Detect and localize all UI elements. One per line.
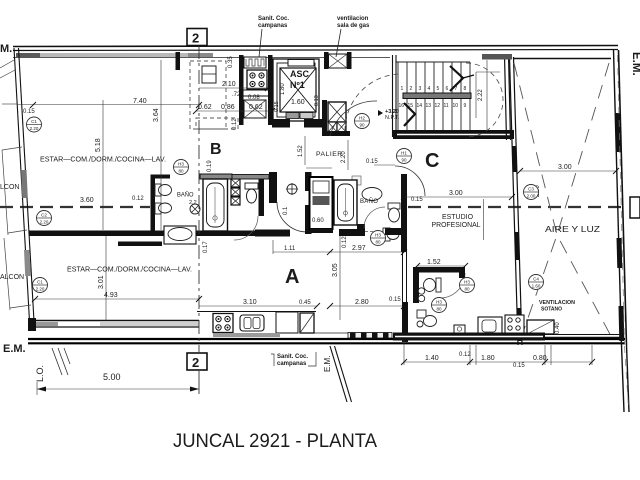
- svg-text:M.: M.: [0, 43, 12, 55]
- svg-text:0.62: 0.62: [249, 104, 263, 111]
- svg-text:AIRE Y LUZ: AIRE Y LUZ: [545, 224, 600, 234]
- svg-text:0.12: 0.12: [132, 196, 144, 202]
- svg-text:ventilacion: ventilacion: [337, 16, 369, 22]
- svg-text:1: 1: [401, 86, 404, 92]
- svg-text:VENTILACION: VENTILACION: [539, 300, 575, 306]
- svg-text:ESTAR—COM./DORM./COCINA—LAV.: ESTAR—COM./DORM./COCINA—LAV.: [67, 267, 192, 274]
- svg-text:campanas: campanas: [258, 23, 288, 29]
- svg-text:2: 2: [192, 31, 199, 46]
- svg-text:campanas: campanas: [277, 361, 307, 367]
- svg-text:1.80: 1.80: [481, 355, 495, 362]
- svg-text:2.22: 2.22: [478, 89, 484, 101]
- svg-text:H2: H2: [359, 116, 365, 121]
- svg-text:0.45: 0.45: [299, 300, 311, 306]
- svg-text:sala de gas: sala de gas: [337, 23, 370, 29]
- svg-text:3.10: 3.10: [243, 299, 257, 306]
- svg-text:3.64: 3.64: [153, 108, 160, 122]
- svg-text:7.40: 7.40: [133, 98, 147, 105]
- svg-text:1.52: 1.52: [298, 145, 304, 157]
- svg-text:2: 2: [192, 355, 199, 370]
- svg-text:B: B: [210, 141, 222, 158]
- svg-text:H3: H3: [375, 233, 381, 238]
- svg-text:1.11: 1.11: [284, 246, 296, 252]
- svg-text:5.18: 5.18: [95, 138, 102, 152]
- svg-text:4.93: 4.93: [104, 292, 118, 299]
- svg-text:0.15: 0.15: [411, 197, 423, 203]
- svg-text:0.08: 0.08: [248, 95, 260, 101]
- svg-text:9: 9: [464, 103, 467, 109]
- svg-text:14: 14: [417, 103, 423, 109]
- svg-text:5: 5: [437, 86, 440, 92]
- svg-text:2.97: 2.97: [352, 245, 366, 252]
- svg-text:C1: C1: [31, 119, 37, 124]
- svg-text:90: 90: [359, 123, 365, 128]
- svg-text:0.1: 0.1: [283, 206, 289, 215]
- svg-text:C: C: [425, 150, 439, 172]
- svg-text:2.00: 2.00: [527, 194, 536, 199]
- svg-text:0.86: 0.86: [221, 104, 235, 111]
- svg-text:0.40: 0.40: [555, 322, 561, 334]
- svg-text:E.M.: E.M.: [630, 52, 640, 76]
- svg-text:0.80: 0.80: [533, 355, 547, 362]
- svg-text:C4: C4: [533, 277, 539, 282]
- svg-text:2.20: 2.20: [40, 220, 49, 225]
- svg-text:2.20: 2.20: [30, 126, 39, 131]
- svg-text:0.13: 0.13: [314, 95, 320, 106]
- svg-text:13: 13: [426, 103, 432, 109]
- svg-text:80: 80: [178, 169, 184, 174]
- svg-text:3.00: 3.00: [449, 190, 463, 197]
- svg-text:2.2: 2.2: [189, 200, 197, 206]
- svg-text:0.35: 0.35: [228, 56, 234, 68]
- svg-text:0.19: 0.19: [207, 160, 213, 172]
- svg-text:0.62: 0.62: [198, 104, 212, 111]
- svg-text:0.12: 0.12: [459, 352, 471, 358]
- svg-text:80: 80: [375, 240, 381, 245]
- svg-text:LCON: LCON: [0, 184, 19, 191]
- svg-text:0.15: 0.15: [366, 159, 378, 165]
- svg-text:12: 12: [435, 103, 441, 109]
- svg-text:0.15: 0.15: [389, 297, 401, 303]
- svg-text:L.O.: L.O.: [35, 365, 45, 382]
- svg-text:H3: H3: [178, 162, 184, 167]
- svg-text:0.60: 0.60: [312, 218, 324, 224]
- svg-text:1.40: 1.40: [425, 355, 439, 362]
- svg-text:E.M.: E.M.: [323, 356, 332, 372]
- svg-text:A: A: [285, 266, 299, 288]
- svg-text:BAÑO: BAÑO: [360, 198, 378, 205]
- svg-text:80: 80: [464, 287, 470, 292]
- svg-text:8: 8: [464, 86, 467, 92]
- svg-text:ASC: ASC: [290, 69, 310, 79]
- svg-text:Sanit. Coc.: Sanit. Coc.: [277, 354, 308, 360]
- svg-text:2.80: 2.80: [355, 299, 369, 306]
- svg-text:90: 90: [401, 158, 407, 163]
- svg-text:H3: H3: [436, 300, 442, 305]
- svg-text:.72: .72: [232, 92, 241, 98]
- svg-text:Nº1: Nº1: [290, 80, 305, 90]
- svg-text:JUNCAL 2921 - PLANTA: JUNCAL 2921 - PLANTA: [173, 431, 377, 452]
- svg-text:3: 3: [419, 86, 422, 92]
- svg-text:11: 11: [444, 103, 449, 109]
- svg-text:BAÑO: BAÑO: [177, 192, 194, 199]
- svg-text:0.15: 0.15: [274, 101, 280, 112]
- svg-text:0.12: 0.12: [342, 236, 348, 248]
- svg-text:0.15: 0.15: [23, 109, 35, 115]
- svg-text:3.01: 3.01: [98, 275, 105, 289]
- svg-text:2.20: 2.20: [341, 151, 347, 163]
- svg-text:1.60: 1.60: [291, 99, 305, 106]
- svg-text:PROFESIONAL: PROFESIONAL: [432, 222, 481, 229]
- svg-text:ESTUDIO: ESTUDIO: [442, 214, 474, 221]
- svg-text:2: 2: [410, 86, 413, 92]
- svg-text:C3: C3: [528, 187, 534, 192]
- svg-text:SOTANO: SOTANO: [541, 307, 562, 313]
- svg-text:80: 80: [436, 307, 442, 312]
- svg-text:3.00: 3.00: [558, 164, 572, 171]
- svg-text:H3: H3: [464, 280, 470, 285]
- svg-text:0.15: 0.15: [513, 363, 525, 369]
- svg-text:1.52: 1.52: [427, 259, 441, 266]
- svg-text:3.05: 3.05: [332, 263, 339, 277]
- svg-text:5.00: 5.00: [103, 372, 121, 382]
- svg-text:1.60: 1.60: [532, 284, 541, 289]
- svg-text:PALIER: PALIER: [316, 151, 343, 158]
- svg-text:H1: H1: [401, 151, 407, 156]
- svg-text:0.12: 0.12: [232, 118, 238, 130]
- svg-text:4: 4: [428, 86, 431, 92]
- svg-text:Sanit. Coc.: Sanit. Coc.: [258, 16, 289, 22]
- svg-text:6: 6: [446, 86, 449, 92]
- svg-text:2.20: 2.20: [36, 287, 45, 292]
- svg-text:N.P.T.: N.P.T.: [385, 115, 400, 121]
- svg-text:0.17: 0.17: [203, 241, 209, 253]
- svg-text:1.80: 1.80: [280, 83, 286, 95]
- svg-text:C2: C2: [41, 213, 47, 218]
- svg-text:E.M.: E.M.: [3, 343, 26, 355]
- svg-text:ALCON: ALCON: [0, 274, 24, 281]
- svg-text:10: 10: [453, 103, 459, 109]
- svg-text:2.10: 2.10: [222, 81, 236, 88]
- svg-text:C1: C1: [37, 280, 43, 285]
- svg-text:3.60: 3.60: [80, 197, 94, 204]
